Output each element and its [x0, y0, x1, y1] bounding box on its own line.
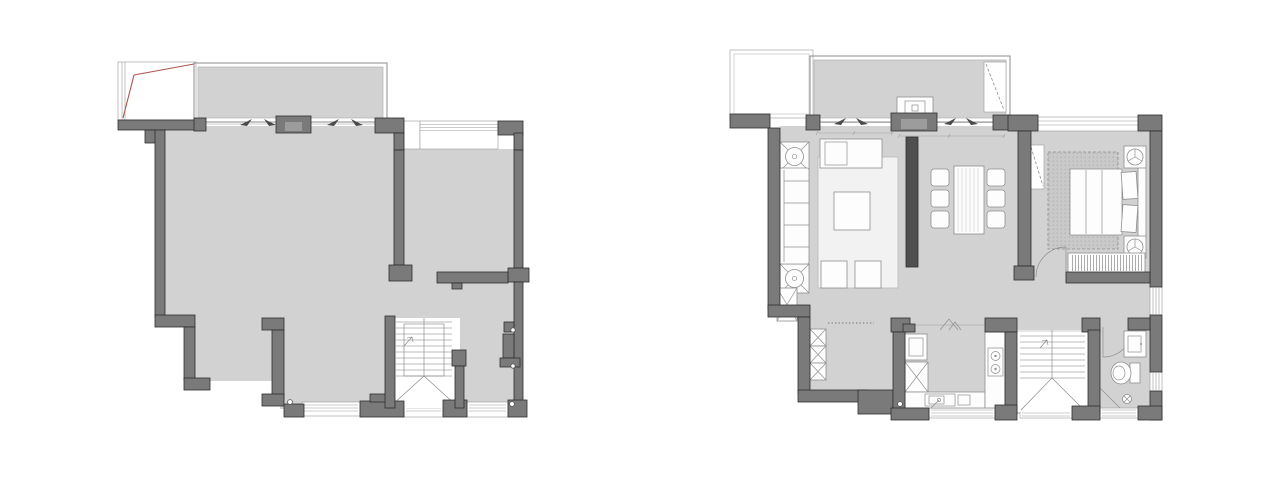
bedroom-window	[1038, 117, 1138, 131]
ottoman-left	[821, 261, 847, 288]
door-hinges	[898, 402, 903, 407]
dining-chair	[931, 169, 949, 186]
bay-window	[420, 121, 498, 149]
staircase	[1017, 330, 1088, 412]
main-floor	[162, 126, 519, 409]
pillow	[1121, 171, 1138, 199]
mirror-panel	[1030, 145, 1044, 189]
cooktop-counter	[985, 332, 1005, 408]
dining-chair	[931, 190, 949, 207]
upper-cabinet	[905, 334, 927, 360]
floor-plans-svg	[0, 0, 1280, 484]
terrace	[730, 50, 813, 118]
nightstand-top	[1124, 146, 1146, 168]
headboard	[1138, 166, 1146, 238]
niche	[404, 121, 420, 149]
dining-chair	[987, 211, 1005, 228]
tv-console	[906, 137, 918, 267]
drying-area	[984, 62, 1006, 112]
counter-sink	[905, 392, 985, 408]
vanity-sink	[1124, 331, 1146, 357]
ottoman-right	[855, 261, 881, 288]
dining-table	[954, 166, 984, 234]
toilet	[1111, 362, 1140, 384]
dining-chair	[931, 211, 949, 228]
sofa	[778, 168, 809, 264]
refrigerator	[905, 362, 928, 392]
plan-structural	[118, 62, 529, 417]
wardrobe	[1068, 253, 1145, 273]
dining-area	[931, 166, 1005, 234]
balcony-floor	[198, 67, 383, 118]
dining-chair	[987, 169, 1005, 186]
open-terrace	[118, 62, 196, 120]
plan-furnished	[730, 50, 1162, 420]
living-room	[778, 137, 918, 293]
plant-top	[780, 142, 809, 171]
chaise	[820, 139, 882, 168]
pillow	[1121, 205, 1138, 233]
floor-plan-canvas	[0, 0, 1280, 484]
hall-cabinets	[810, 329, 826, 380]
coffee-table	[834, 192, 870, 230]
dining-chair	[987, 190, 1005, 207]
staircase	[390, 318, 460, 408]
